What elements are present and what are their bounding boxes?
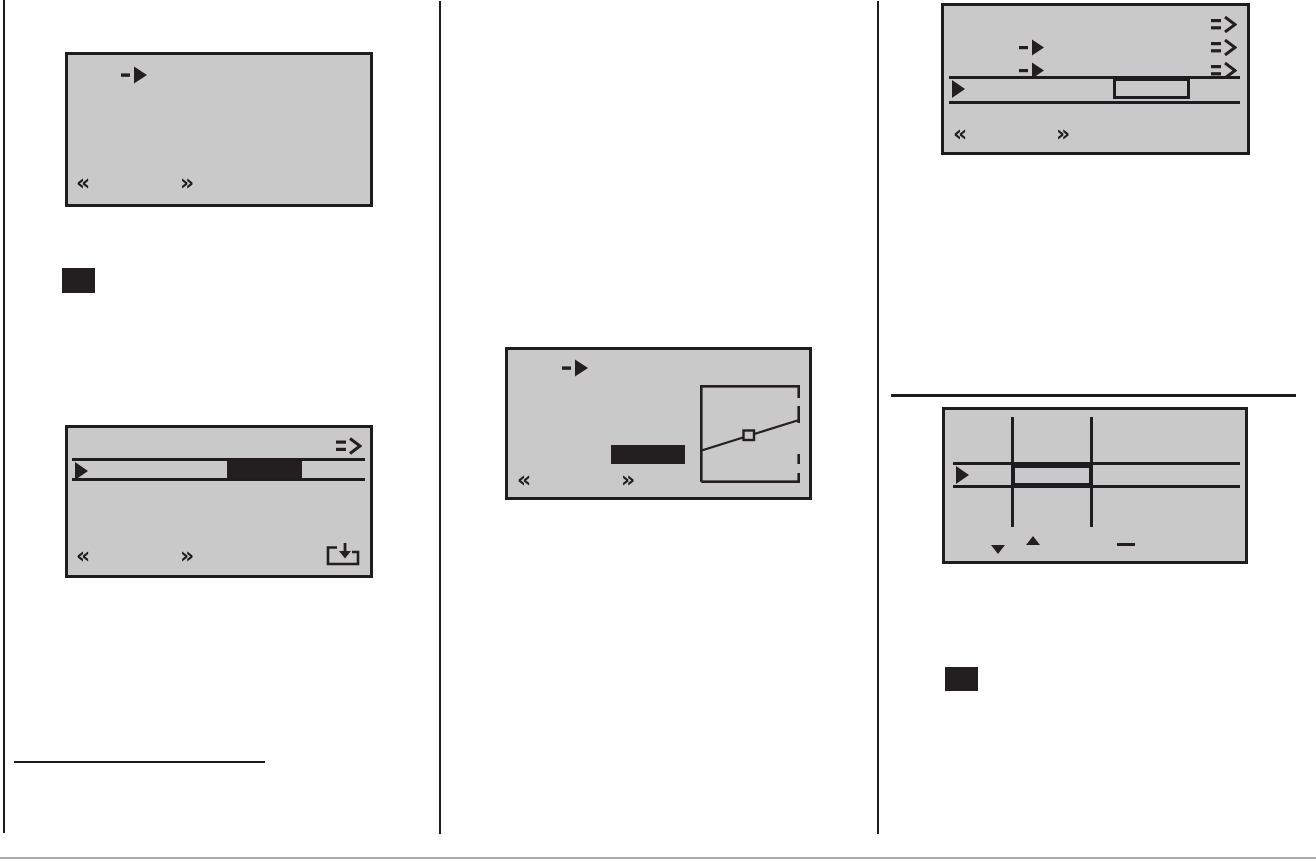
shift-arrow-icon (336, 437, 362, 455)
prev-chevron-icon: « (953, 124, 967, 146)
prev-chevron-icon: « (76, 546, 90, 568)
left-column-rule (14, 761, 265, 763)
track-top-line (953, 462, 1240, 465)
cursor-triangle-icon (952, 80, 965, 98)
shift-arrow-icon (1211, 39, 1237, 56)
page-bottom-rule (0, 857, 1316, 859)
right-column-rule (891, 394, 1296, 397)
lcd-screen-5 (942, 407, 1248, 564)
track-top-line (72, 458, 365, 461)
lcd-screen-3: « » (505, 347, 812, 500)
track-bottom-line (72, 478, 365, 481)
black-square-right (945, 667, 978, 691)
value-box-filled (611, 445, 685, 464)
save-memory-icon (325, 543, 361, 567)
column-divider-1 (439, 1, 441, 834)
track-bottom-line (953, 485, 1240, 488)
minus-dash-icon (1117, 543, 1135, 546)
menu-arrow-icon (562, 359, 589, 377)
track-top-line (949, 76, 1240, 79)
next-chevron-icon: » (180, 546, 194, 568)
next-chevron-icon: » (1056, 124, 1070, 146)
prev-chevron-icon: « (76, 173, 90, 195)
cursor-triangle-icon (956, 466, 969, 484)
shift-arrow-icon (1211, 16, 1237, 33)
menu-arrow-icon (1019, 39, 1045, 56)
selected-cell-thick (1011, 464, 1093, 487)
manual-page: « » « » (0, 0, 1316, 861)
column-divider-2 (877, 1, 879, 834)
page-left-border (3, 0, 5, 833)
next-chevron-icon: » (621, 470, 635, 492)
up-triangle-icon (1026, 536, 1040, 545)
black-square-left (62, 268, 95, 293)
down-triangle-icon (991, 545, 1005, 554)
selected-cell-filled (227, 461, 302, 478)
prev-chevron-icon: « (517, 470, 531, 492)
lcd-screen-4: « » (941, 3, 1250, 155)
lcd-screen-1: « » (65, 52, 373, 207)
selected-cell-outline (1113, 77, 1190, 99)
next-chevron-icon: » (180, 173, 194, 195)
menu-arrow-icon (121, 66, 148, 84)
lcd-screen-2: « » (65, 425, 373, 578)
track-bottom-line (949, 101, 1240, 104)
curve-graph (700, 385, 800, 483)
